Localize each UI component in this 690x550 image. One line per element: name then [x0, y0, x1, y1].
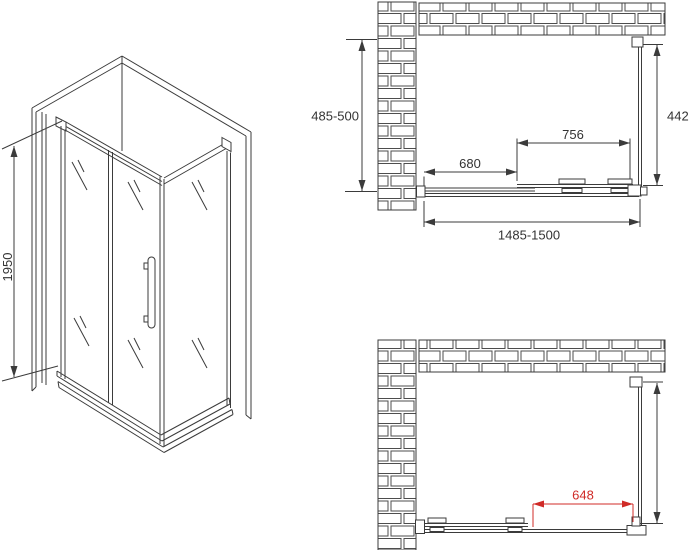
roller-carriage-1-guide [430, 528, 444, 532]
corner-connector [628, 185, 641, 196]
top-plan-door-track [417, 179, 648, 197]
side-panel-top-edges [164, 142, 227, 184]
isometric-view: 1950 [0, 56, 251, 453]
top-rail [66, 122, 162, 186]
opening-dimension-label: 648 [572, 488, 594, 503]
dimension-depth-485-500: 485-500 [311, 40, 377, 192]
side-glass-panel [164, 138, 231, 409]
tray-right-edges [161, 398, 233, 453]
glass-shine-marks [72, 160, 207, 368]
side-panel-back-edge [227, 151, 231, 408]
dimension-height-1950: 1950 [0, 121, 62, 381]
sliding-panel-lines [517, 185, 633, 188]
door-left-post [61, 126, 65, 379]
handle-bar [148, 257, 155, 328]
opening-extension-lines [533, 504, 633, 527]
bottom-plan-side-panel [630, 377, 642, 529]
side-panel-wall-bracket [630, 377, 642, 387]
dimension-overall-width-1485-1500: 1485-1500 [424, 199, 640, 243]
sliding-panel-extension-lines [517, 139, 630, 182]
dimension-side-panel-unlabeled [640, 382, 663, 524]
track-rail-lines [425, 194, 639, 197]
shower-enclosure-technical-drawing: 1950 485-500 [0, 0, 690, 550]
overall-width-dimension-label: 1485-1500 [498, 228, 560, 243]
fixed-glass-lines [425, 188, 535, 191]
roller-carriage-2 [608, 179, 632, 184]
corner-connector-nub [641, 187, 648, 195]
drawing-canvas: 1950 485-500 [0, 0, 690, 550]
handle-mount-top [144, 263, 148, 269]
top-plan-view: 485-500 442 756 680 1485-1500 [311, 2, 688, 243]
dimension-sliding-panel-756: 756 [517, 127, 630, 181]
roller-carriage-1-guide [562, 189, 582, 193]
side-panel-dimension-label: 442 [667, 109, 689, 124]
side-panel-glass-lines [639, 387, 642, 529]
sliding-panel-dimension-label: 756 [562, 127, 584, 142]
track-rail-lines [425, 530, 639, 533]
roller-carriage-2-guide [611, 189, 629, 193]
dimension-side-panel-442: 442 [643, 45, 689, 186]
depth-dimension-label: 485-500 [311, 109, 359, 124]
door-panel-divider [109, 150, 113, 405]
brick-wall-left [378, 340, 416, 550]
dimension-opening-648: 648 [533, 488, 633, 528]
roller-carriage-2 [506, 518, 524, 523]
roller-carriage-1 [559, 179, 585, 184]
side-extension-lines [640, 382, 663, 524]
wall-profile-bracket [417, 186, 426, 197]
bottom-plan-view: 648 [378, 340, 665, 550]
door-handle [144, 257, 155, 328]
top-plan-side-panel [632, 37, 643, 190]
side-panel-extension-lines [643, 45, 663, 186]
brick-wall-back [419, 340, 665, 372]
height-dimension-label: 1950 [0, 253, 15, 282]
wall-profile-bracket [416, 520, 425, 534]
overall-width-extension-lines [424, 199, 640, 227]
wall-profile [42, 112, 46, 385]
roller-carriage-1 [428, 518, 446, 523]
side-panel-end-cap [222, 138, 231, 152]
sliding-panel-lines [425, 524, 528, 527]
door-right-post [160, 177, 164, 447]
roller-carriage-2-guide [508, 528, 522, 532]
bottom-plan-door-track [416, 517, 647, 535]
corner-connector [627, 526, 646, 536]
fixed-section-dimension-label: 680 [459, 156, 481, 171]
tray-front-edges [57, 371, 164, 453]
side-panel-wall-bracket [632, 37, 643, 47]
brick-wall-left [378, 2, 416, 210]
side-panel-glass-lines [639, 46, 642, 190]
sliding-door-assembly [42, 112, 164, 446]
shower-tray [57, 371, 233, 453]
handle-mount-bottom [144, 316, 148, 322]
dimension-fixed-section-680: 680 [424, 156, 517, 186]
brick-wall-back [419, 3, 665, 35]
